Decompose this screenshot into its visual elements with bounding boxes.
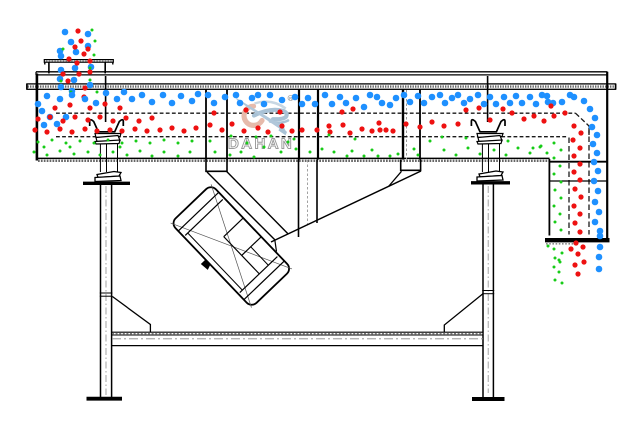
svg-text:DAHAN: DAHAN <box>228 135 294 152</box>
